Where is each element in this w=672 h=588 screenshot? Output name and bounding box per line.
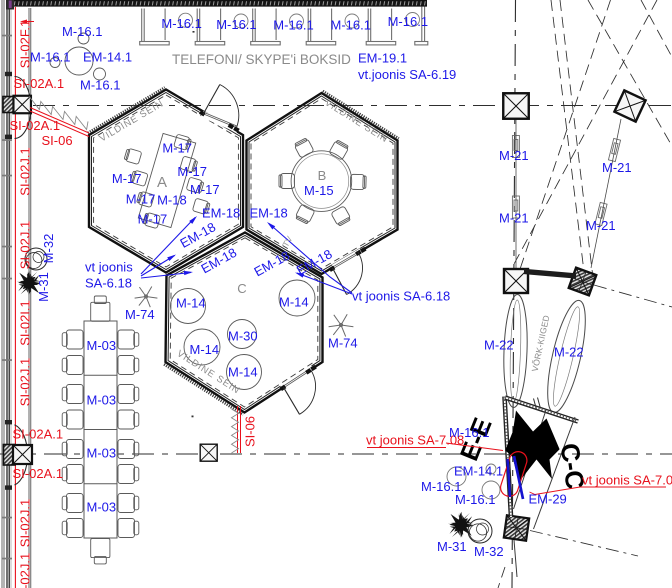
svg-text:M-74: M-74 xyxy=(125,307,155,322)
svg-text:M-32: M-32 xyxy=(41,234,56,264)
svg-text:M-16.1: M-16.1 xyxy=(449,425,489,440)
svg-text:M-17: M-17 xyxy=(177,164,207,179)
svg-text:M-31: M-31 xyxy=(36,272,51,302)
svg-text:M-31: M-31 xyxy=(437,539,467,554)
svg-text:M-32: M-32 xyxy=(474,544,504,559)
svg-text:SI-02J.1: SI-02J.1 xyxy=(18,221,33,269)
svg-text:SI-02J.1: SI-02J.1 xyxy=(18,553,33,588)
svg-text:SA-6.18: SA-6.18 xyxy=(85,276,132,291)
svg-text:M-17: M-17 xyxy=(138,212,168,227)
svg-text:EM-14.1: EM-14.1 xyxy=(454,464,503,479)
svg-text:EM-14.1: EM-14.1 xyxy=(83,50,132,65)
svg-text:M-17: M-17 xyxy=(190,182,220,197)
svg-text:EM-19.1: EM-19.1 xyxy=(358,51,407,66)
svg-text:M-16.1: M-16.1 xyxy=(62,24,102,39)
svg-text:M-16.1: M-16.1 xyxy=(388,14,428,29)
svg-text:SI-06: SI-06 xyxy=(243,416,258,447)
svg-text:M-21: M-21 xyxy=(499,148,529,163)
svg-text:M-16.1: M-16.1 xyxy=(216,17,256,32)
svg-text:M-16.1: M-16.1 xyxy=(30,50,70,65)
svg-text:M-03: M-03 xyxy=(87,500,117,515)
svg-text:M-30: M-30 xyxy=(228,329,258,344)
svg-text:M-16.1: M-16.1 xyxy=(80,78,120,93)
svg-text:M-16.1: M-16.1 xyxy=(161,16,201,31)
svg-text:M-17: M-17 xyxy=(162,141,192,156)
svg-text:M-03: M-03 xyxy=(87,446,117,461)
svg-text:M-18: M-18 xyxy=(157,193,187,208)
svg-text:SI-02I.1: SI-02I.1 xyxy=(18,300,33,346)
svg-text:M-14: M-14 xyxy=(176,296,206,311)
svg-text:SI-02J.1: SI-02J.1 xyxy=(18,358,33,406)
svg-text:M-21: M-21 xyxy=(499,211,529,226)
svg-text:vt.joonis SA-6.19: vt.joonis SA-6.19 xyxy=(358,67,456,82)
svg-text:M-14: M-14 xyxy=(190,342,220,357)
svg-text:M-22: M-22 xyxy=(554,345,584,360)
svg-text:M-74: M-74 xyxy=(328,336,358,351)
svg-text:M-16.1: M-16.1 xyxy=(455,492,495,507)
svg-text:M-14: M-14 xyxy=(228,365,258,380)
svg-text:M-22: M-22 xyxy=(484,338,514,353)
svg-text:EM-18: EM-18 xyxy=(202,206,240,221)
svg-text:vt joonis: vt joonis xyxy=(85,260,133,275)
svg-text:M-17: M-17 xyxy=(126,192,156,207)
svg-text:M-15: M-15 xyxy=(304,183,334,198)
svg-text:SI-02A.1: SI-02A.1 xyxy=(13,466,64,481)
svg-text:M-21: M-21 xyxy=(602,160,632,175)
svg-text:SI-02J.1: SI-02J.1 xyxy=(18,147,33,195)
svg-text:vt joonis SA-7.08: vt joonis SA-7.08 xyxy=(582,473,672,488)
svg-text:EM-18: EM-18 xyxy=(250,206,288,221)
svg-text:TELEFONI/ SKYPE'i BOKSID: TELEFONI/ SKYPE'i BOKSID xyxy=(172,52,351,67)
svg-text:SI-06: SI-06 xyxy=(42,133,73,148)
svg-text:B: B xyxy=(318,168,327,183)
svg-text:M-03: M-03 xyxy=(87,338,117,353)
svg-text:SI-02A.1: SI-02A.1 xyxy=(14,76,65,91)
svg-text:M-17: M-17 xyxy=(112,171,142,186)
svg-text:M-16.1: M-16.1 xyxy=(331,18,371,33)
svg-text:M-21: M-21 xyxy=(586,218,616,233)
svg-text:M-14: M-14 xyxy=(279,295,309,310)
svg-text:M-16.1: M-16.1 xyxy=(273,18,313,33)
svg-text:SI-02J.1: SI-02J.1 xyxy=(18,499,33,547)
svg-text:M-03: M-03 xyxy=(87,393,117,408)
svg-text:SI-02A.1: SI-02A.1 xyxy=(13,427,64,442)
svg-text:C: C xyxy=(237,281,246,296)
svg-text:A: A xyxy=(157,174,167,191)
svg-text:EM-29: EM-29 xyxy=(529,492,567,507)
svg-text:vt joonis SA-6.18: vt joonis SA-6.18 xyxy=(352,289,450,304)
